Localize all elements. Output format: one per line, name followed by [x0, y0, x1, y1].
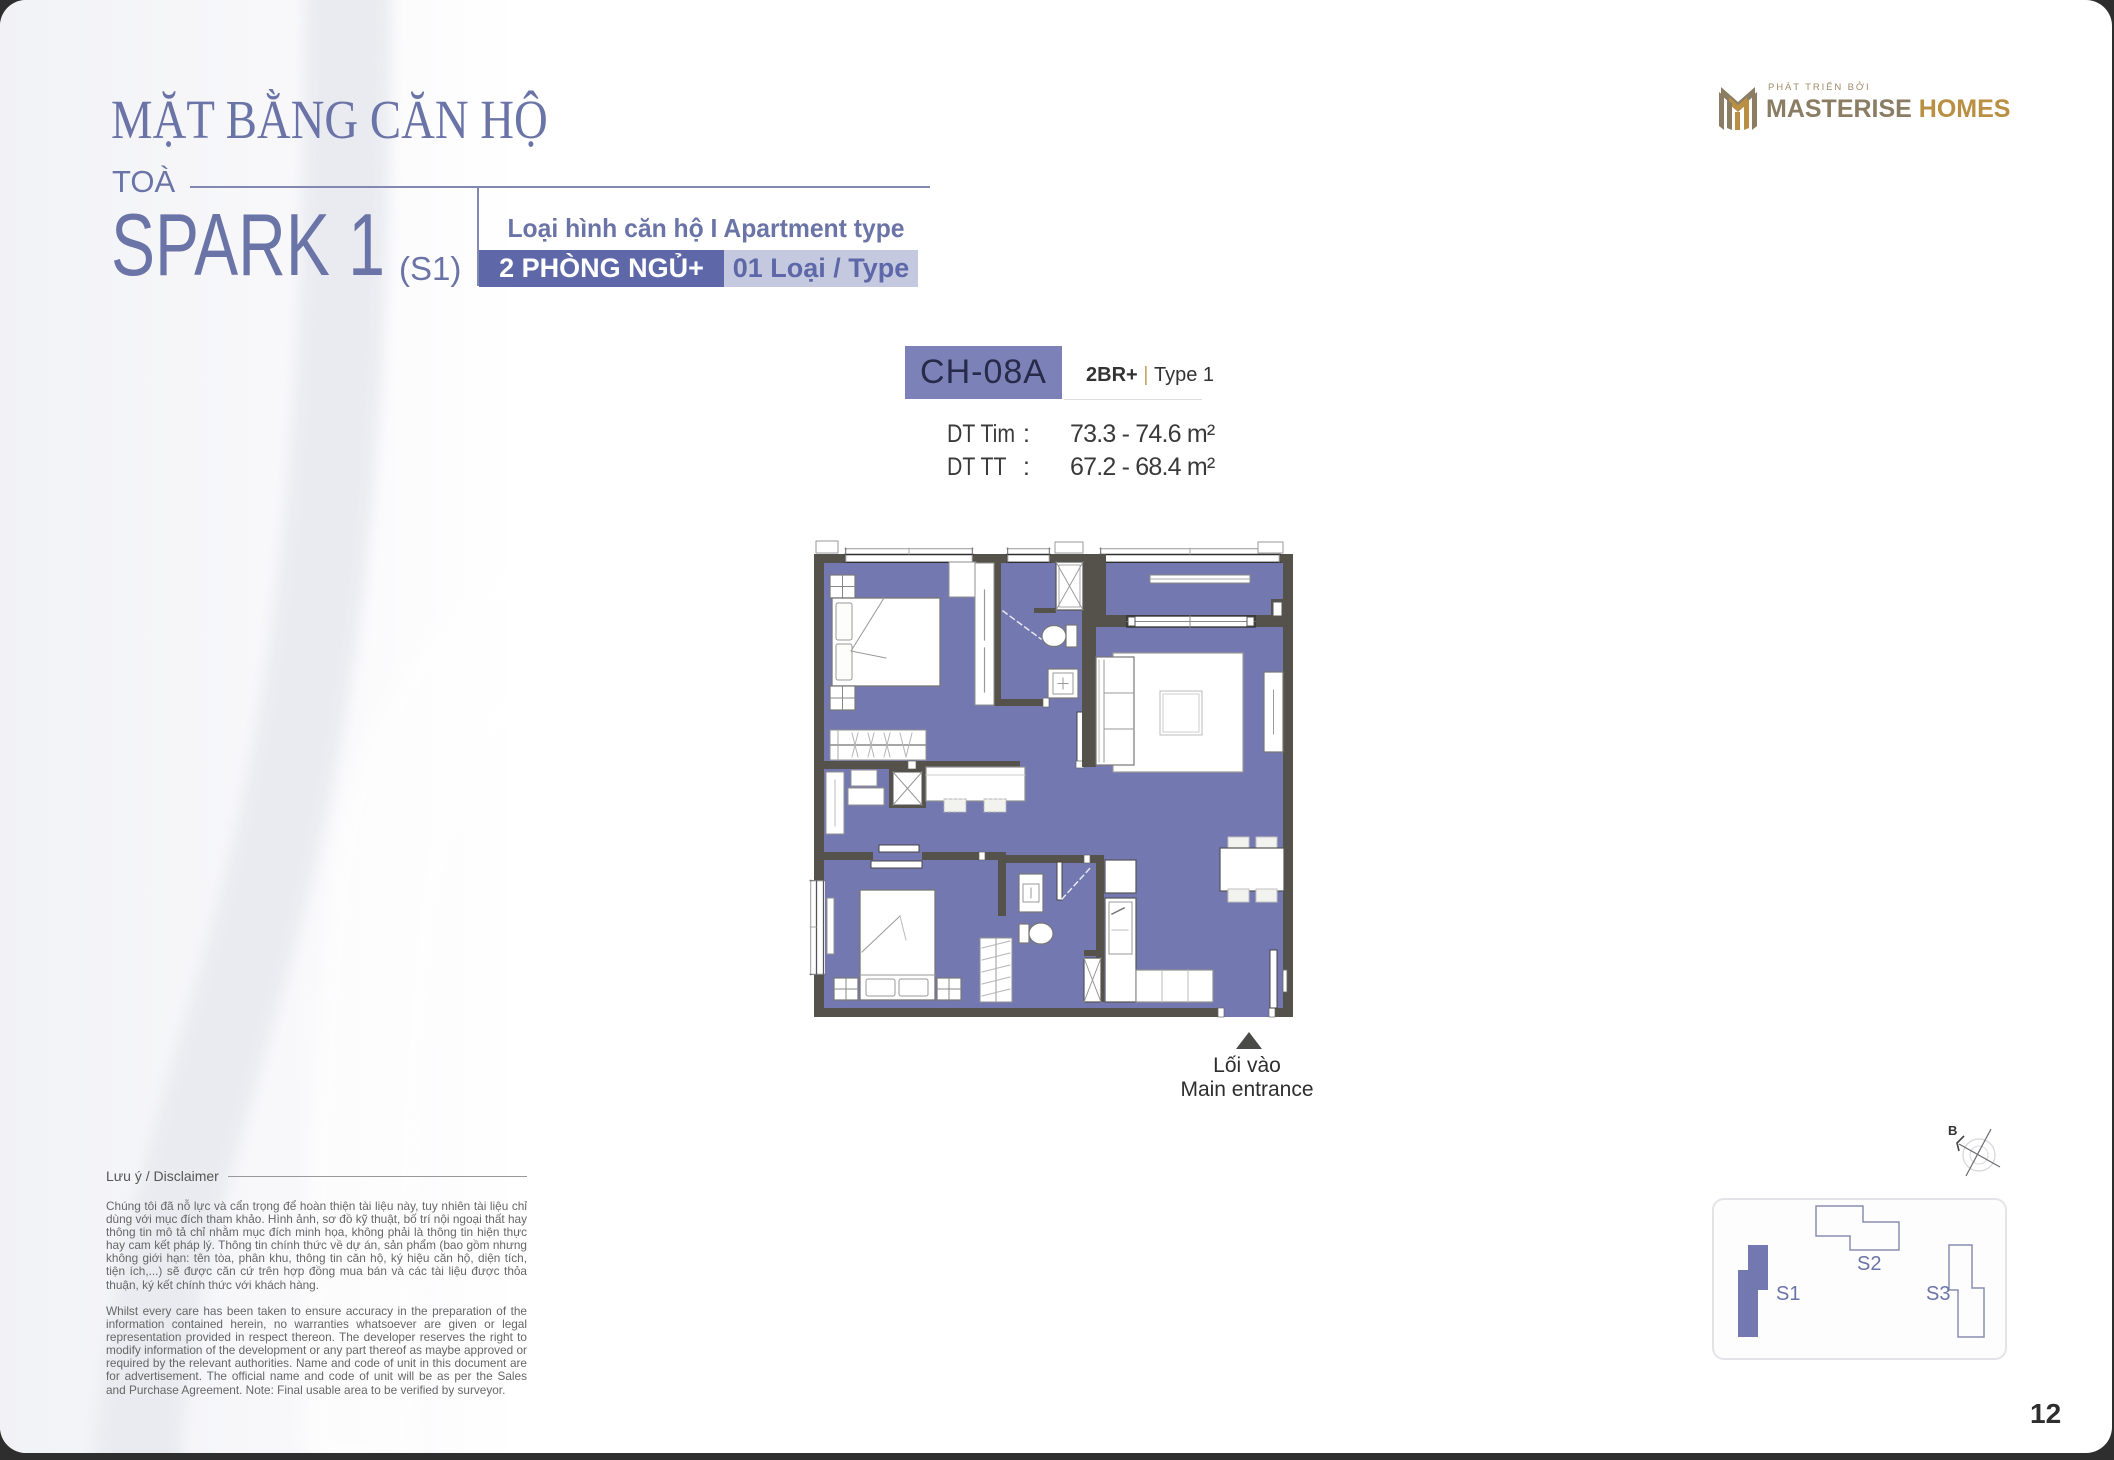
svg-text:S1: S1 — [1776, 1283, 1800, 1305]
svg-text:S2: S2 — [1857, 1253, 1881, 1275]
svg-text:S3: S3 — [1926, 1283, 1950, 1305]
svg-text:B: B — [1948, 1123, 1957, 1138]
svg-text:MASTERISE HOMES: MASTERISE HOMES — [1766, 95, 2010, 123]
svg-text:PHÁT TRIỂN BỞI: PHÁT TRIỂN BỞI — [1768, 81, 1871, 93]
